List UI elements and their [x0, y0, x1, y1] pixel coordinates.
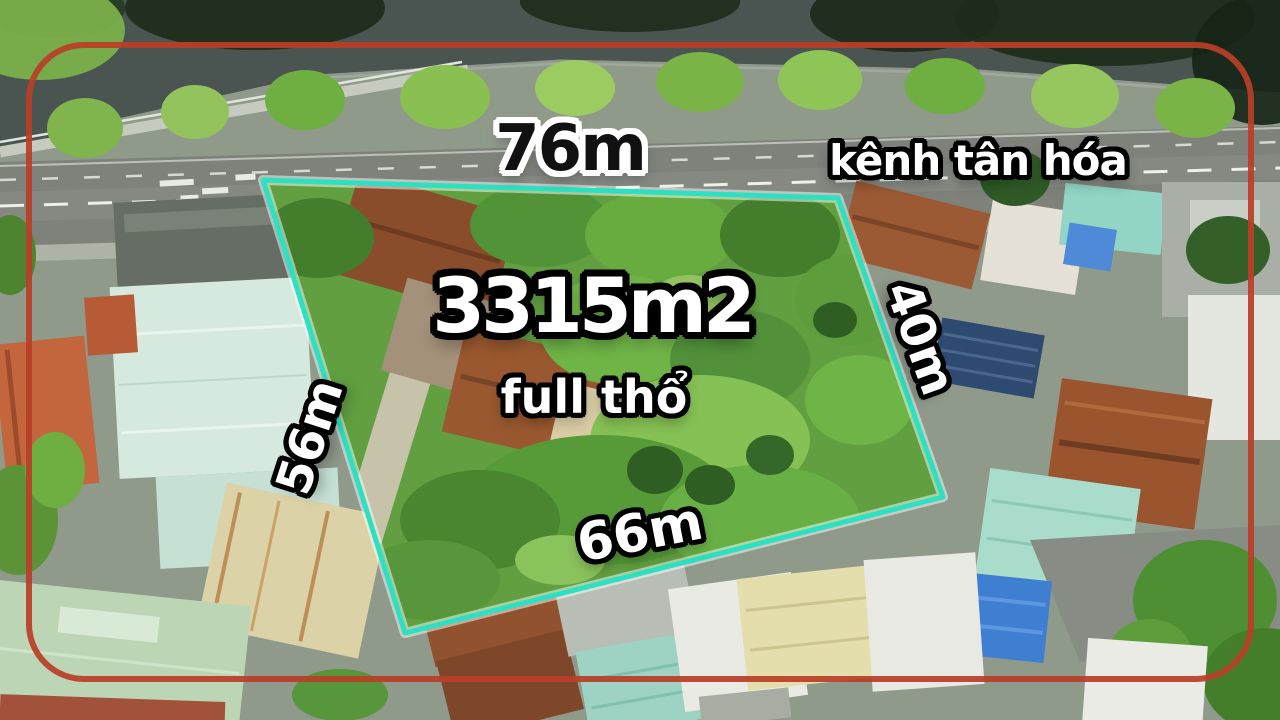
area-label: 3315m2 [432, 268, 752, 344]
aerial-scene [0, 0, 1280, 720]
top-measurement-label: 76m [495, 117, 645, 181]
aerial-photo: 76m kênh tân hóa 3315m2 full thổ 56m 40m… [0, 0, 1280, 720]
blue-tarp [1063, 223, 1117, 272]
land-status-label: full thổ [501, 374, 688, 420]
canal-name-label: kênh tân hóa [829, 140, 1127, 182]
